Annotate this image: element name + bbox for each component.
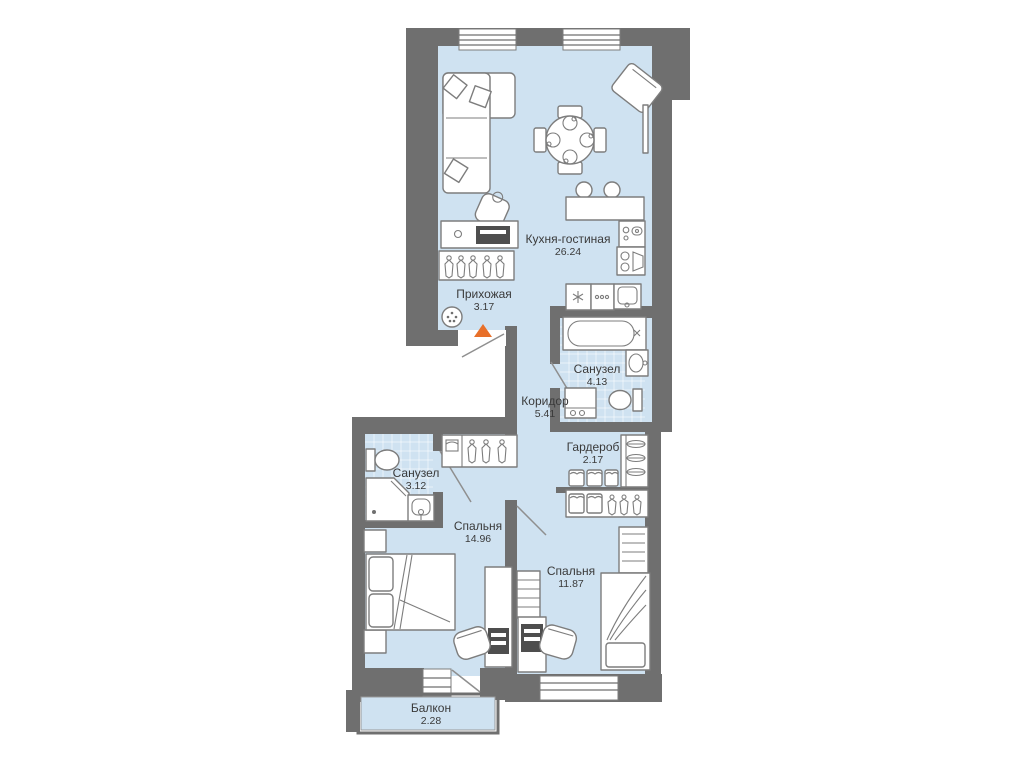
window-top-left <box>459 29 516 50</box>
floor-plan-drawing <box>0 0 1024 768</box>
bookshelf <box>517 571 540 618</box>
room-label-wardrobe: Гардероб 2.17 <box>567 440 620 467</box>
bedroom2-closet <box>566 490 648 517</box>
room-area: 26.24 <box>526 246 611 259</box>
room-area: 4.13 <box>574 376 621 389</box>
room-name: Спальня <box>454 519 502 533</box>
room-label-balcony: Балкон 2.28 <box>411 701 451 728</box>
room-area: 3.12 <box>393 480 440 493</box>
bath-sink <box>626 350 648 376</box>
desk-1 <box>485 567 512 667</box>
kitchen-sink-2 <box>614 284 641 309</box>
room-label-hallway: Прихожая 3.17 <box>456 287 512 314</box>
room-area: 14.96 <box>454 533 502 546</box>
fridge <box>566 284 591 310</box>
floor-plan: Кухня-гостиная 26.24 Прихожая 3.17 Сануз… <box>0 0 1024 768</box>
double-bed <box>366 554 455 630</box>
wardrobe-shelving <box>621 435 648 487</box>
stove <box>617 247 645 275</box>
room-name: Кухня-гостиная <box>526 232 611 246</box>
single-bed <box>601 573 650 670</box>
room-area: 2.28 <box>411 715 451 728</box>
room-area: 3.17 <box>456 301 512 314</box>
room-name: Спальня <box>547 564 595 578</box>
nightstand-2 <box>364 630 386 653</box>
room-label-bedroom-2: Спальня 11.87 <box>547 564 595 591</box>
wardrobe-bins <box>569 470 618 486</box>
room-name: Санузел <box>393 466 440 480</box>
sink-2 <box>408 495 434 521</box>
washing-machine <box>565 388 596 418</box>
room-label-bathroom-2: Санузел 3.12 <box>393 466 440 493</box>
hallway-desk <box>441 221 518 248</box>
kitchen-cabinet <box>591 284 614 310</box>
nightstand-1 <box>364 530 386 552</box>
room-name: Гардероб <box>567 440 620 454</box>
room-name: Прихожая <box>456 287 512 301</box>
window-bedroom2 <box>540 676 618 700</box>
room-label-kitchen-living: Кухня-гостиная 26.24 <box>526 232 611 259</box>
hallway-closet <box>439 251 514 280</box>
kitchen-sink-unit <box>619 221 645 247</box>
bathtub <box>563 317 646 350</box>
room-label-bedroom-1: Спальня 14.96 <box>454 519 502 546</box>
bedroom1-wardrobe <box>442 435 517 467</box>
drying-rack <box>619 527 648 573</box>
window-top-right <box>563 29 620 50</box>
room-area: 5.41 <box>521 408 568 421</box>
room-area: 11.87 <box>547 578 595 591</box>
room-name: Балкон <box>411 701 451 715</box>
tv-console <box>643 105 648 153</box>
room-name: Санузел <box>574 362 621 376</box>
room-label-bathroom-1: Санузел 4.13 <box>574 362 621 389</box>
room-label-corridor: Коридор 5.41 <box>521 394 568 421</box>
room-name: Коридор <box>521 394 568 408</box>
room-area: 2.17 <box>567 454 620 467</box>
toilet <box>609 389 642 411</box>
